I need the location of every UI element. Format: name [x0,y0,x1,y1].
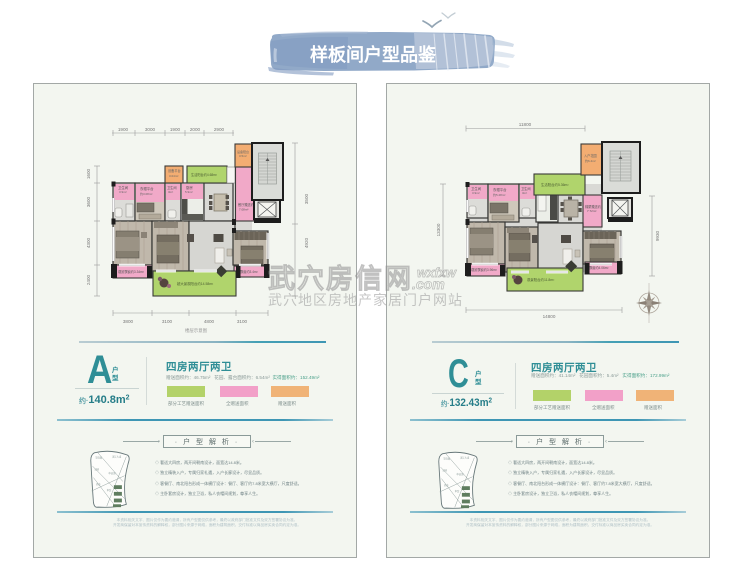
svg-text:本案: 本案 [455,489,460,493]
svg-text:入户花园: 入户花园 [584,153,597,158]
svg-text:约3.08m²: 约3.08m² [140,191,152,196]
svg-text:餐厅赠送约: 餐厅赠送约 [238,202,254,207]
svg-text:生活阳台约5.36m²: 生活阳台约5.36m² [541,182,569,187]
svg-text:中央湖: 中央湖 [109,471,116,475]
svg-text:约6.4m²: 约6.4m² [585,158,596,163]
svg-text:2400: 2400 [86,274,91,285]
svg-text:生活阳台约4.68m²: 生活阳台约4.68m² [191,172,217,177]
svg-text:飘窗约4.06m²: 飘窗约4.06m² [589,265,608,270]
svg-text:7.72m²: 7.72m² [587,209,596,213]
svg-text:约5.28m²: 约5.28m² [493,192,505,197]
svg-text:学府路: 学府路 [443,456,450,460]
svg-text:商业: 商业 [444,483,449,487]
svg-text:中央湖: 中央湖 [457,472,464,476]
svg-text:2900: 2900 [214,127,225,132]
svg-text:3100: 3100 [162,319,173,324]
svg-text:观景飘窗约3.34m²: 观景飘窗约3.34m² [118,269,144,274]
svg-text:公园: 公园 [94,467,99,471]
svg-text:9930: 9930 [655,230,660,241]
svg-text:1900: 1900 [118,127,129,132]
svg-text:11800: 11800 [519,122,532,127]
svg-text:超大景观阳台约14.58m²: 超大景观阳台约14.58m² [177,281,214,286]
svg-text:学府路: 学府路 [95,455,102,459]
svg-text:4800: 4800 [204,319,215,324]
svg-text:武穴地区房地产家居门户网站: 武穴地区房地产家居门户网站 [268,292,463,308]
svg-text:7.08m²: 7.08m² [239,208,248,212]
svg-text:1900: 1900 [170,127,181,132]
svg-text:设备平台: 设备平台 [168,168,181,173]
svg-text:4920: 4920 [304,237,309,248]
svg-text:楼层示意图: 楼层示意图 [185,327,208,334]
svg-text:3.04m²: 3.04m² [169,174,178,178]
svg-text:3800: 3800 [123,319,134,324]
svg-text:3m²: 3m² [168,190,173,194]
svg-text:衣帽平台: 衣帽平台 [140,186,154,191]
svg-text:3600: 3600 [86,196,91,207]
svg-text:3.5m²: 3.5m² [239,154,247,158]
svg-text:13300: 13300 [436,223,441,236]
svg-text:3.9m²: 3.9m² [119,190,127,194]
svg-text:滨江大道: 滨江大道 [112,454,122,458]
svg-text:公园: 公园 [442,468,447,472]
svg-text:武穴房信网: 武穴房信网 [268,264,413,294]
svg-text:5.9m²: 5.9m² [185,190,193,194]
svg-text:衣帽平台: 衣帽平台 [493,187,507,192]
svg-text:滨江大道: 滨江大道 [460,455,470,459]
svg-text:3m²: 3m² [522,191,527,195]
svg-text:本案: 本案 [107,488,112,492]
svg-text:.com: .com [412,276,445,292]
svg-text:1600: 1600 [86,168,91,179]
svg-text:14800: 14800 [543,314,556,319]
svg-text:商业: 商业 [96,482,101,486]
svg-text:2000: 2000 [190,127,201,132]
svg-text:观景阳台约11.8m²: 观景阳台约11.8m² [527,277,555,282]
svg-text:3.9m²: 3.9m² [472,191,480,195]
svg-text:4300: 4300 [86,237,91,248]
svg-text:3000: 3000 [145,127,156,132]
svg-text:3500: 3500 [304,193,309,204]
